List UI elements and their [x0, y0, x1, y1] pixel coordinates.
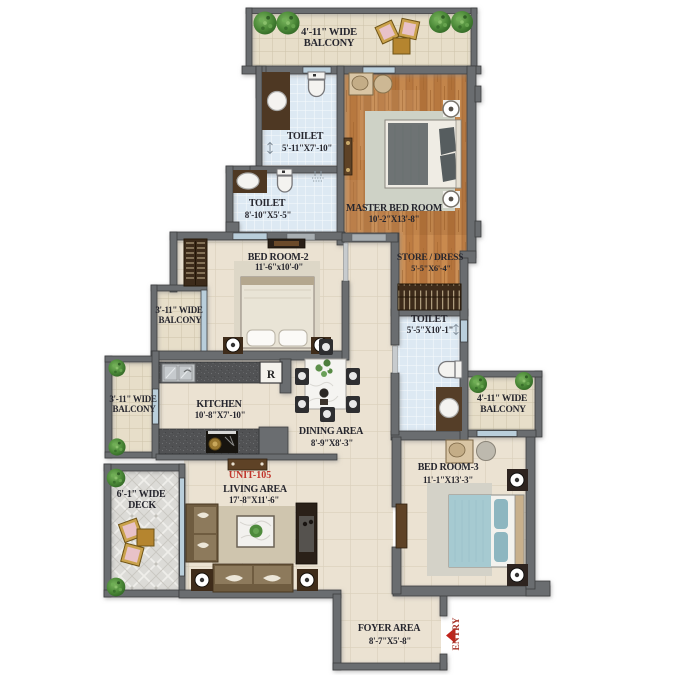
svg-text:BALCONY: BALCONY — [113, 404, 157, 414]
svg-text:BALCONY: BALCONY — [159, 315, 203, 325]
svg-text:R: R — [267, 369, 276, 381]
svg-text:8'-7"X5'-8": 8'-7"X5'-8" — [369, 636, 411, 646]
svg-text:10'-2"X13'-8": 10'-2"X13'-8" — [369, 214, 420, 224]
svg-text:6'-1" WIDE: 6'-1" WIDE — [117, 489, 166, 500]
svg-text:MASTER BED ROOM: MASTER BED ROOM — [346, 203, 443, 214]
svg-text:TOILET: TOILET — [249, 198, 286, 209]
svg-text:TOILET: TOILET — [287, 131, 324, 142]
svg-text:FOYER AREA: FOYER AREA — [358, 623, 421, 634]
svg-text:3'-11" WIDE: 3'-11" WIDE — [155, 305, 203, 315]
svg-text:4'-11" WIDE: 4'-11" WIDE — [477, 394, 527, 404]
svg-text:ENTRY: ENTRY — [452, 617, 462, 650]
svg-text:5'-5"X10'-1": 5'-5"X10'-1" — [407, 325, 453, 335]
svg-text:5'-11"X7'-10": 5'-11"X7'-10" — [282, 143, 332, 153]
svg-text:5'-5"X6'-4": 5'-5"X6'-4" — [411, 263, 451, 273]
svg-text:8'-10"X5'-5": 8'-10"X5'-5" — [245, 210, 291, 220]
svg-text:DECK: DECK — [128, 500, 156, 511]
svg-text:LIVING AREA: LIVING AREA — [223, 484, 288, 495]
svg-text:KITCHEN: KITCHEN — [196, 399, 242, 410]
svg-text:BED ROOM-3: BED ROOM-3 — [418, 462, 479, 473]
svg-text:DINING AREA: DINING AREA — [299, 426, 364, 437]
svg-text:TOILET: TOILET — [411, 314, 448, 325]
svg-text:3'-11" WIDE: 3'-11" WIDE — [109, 394, 157, 404]
svg-text:STORE / DRESS: STORE / DRESS — [397, 253, 463, 263]
svg-text:11'-6"x10'-0": 11'-6"x10'-0" — [255, 262, 303, 272]
svg-text:BALCONY: BALCONY — [304, 38, 355, 49]
svg-text:10'-8"X7'-10": 10'-8"X7'-10" — [195, 410, 246, 420]
svg-text:UNIT-105: UNIT-105 — [229, 470, 271, 481]
svg-text:8'-9"X8'-3": 8'-9"X8'-3" — [311, 438, 353, 448]
svg-text:BALCONY: BALCONY — [480, 405, 526, 415]
svg-text:17'-8"X11'-6": 17'-8"X11'-6" — [229, 495, 279, 505]
svg-text:4'-11" WIDE: 4'-11" WIDE — [301, 27, 357, 38]
svg-text:11'-1"X13'-3": 11'-1"X13'-3" — [423, 475, 473, 485]
